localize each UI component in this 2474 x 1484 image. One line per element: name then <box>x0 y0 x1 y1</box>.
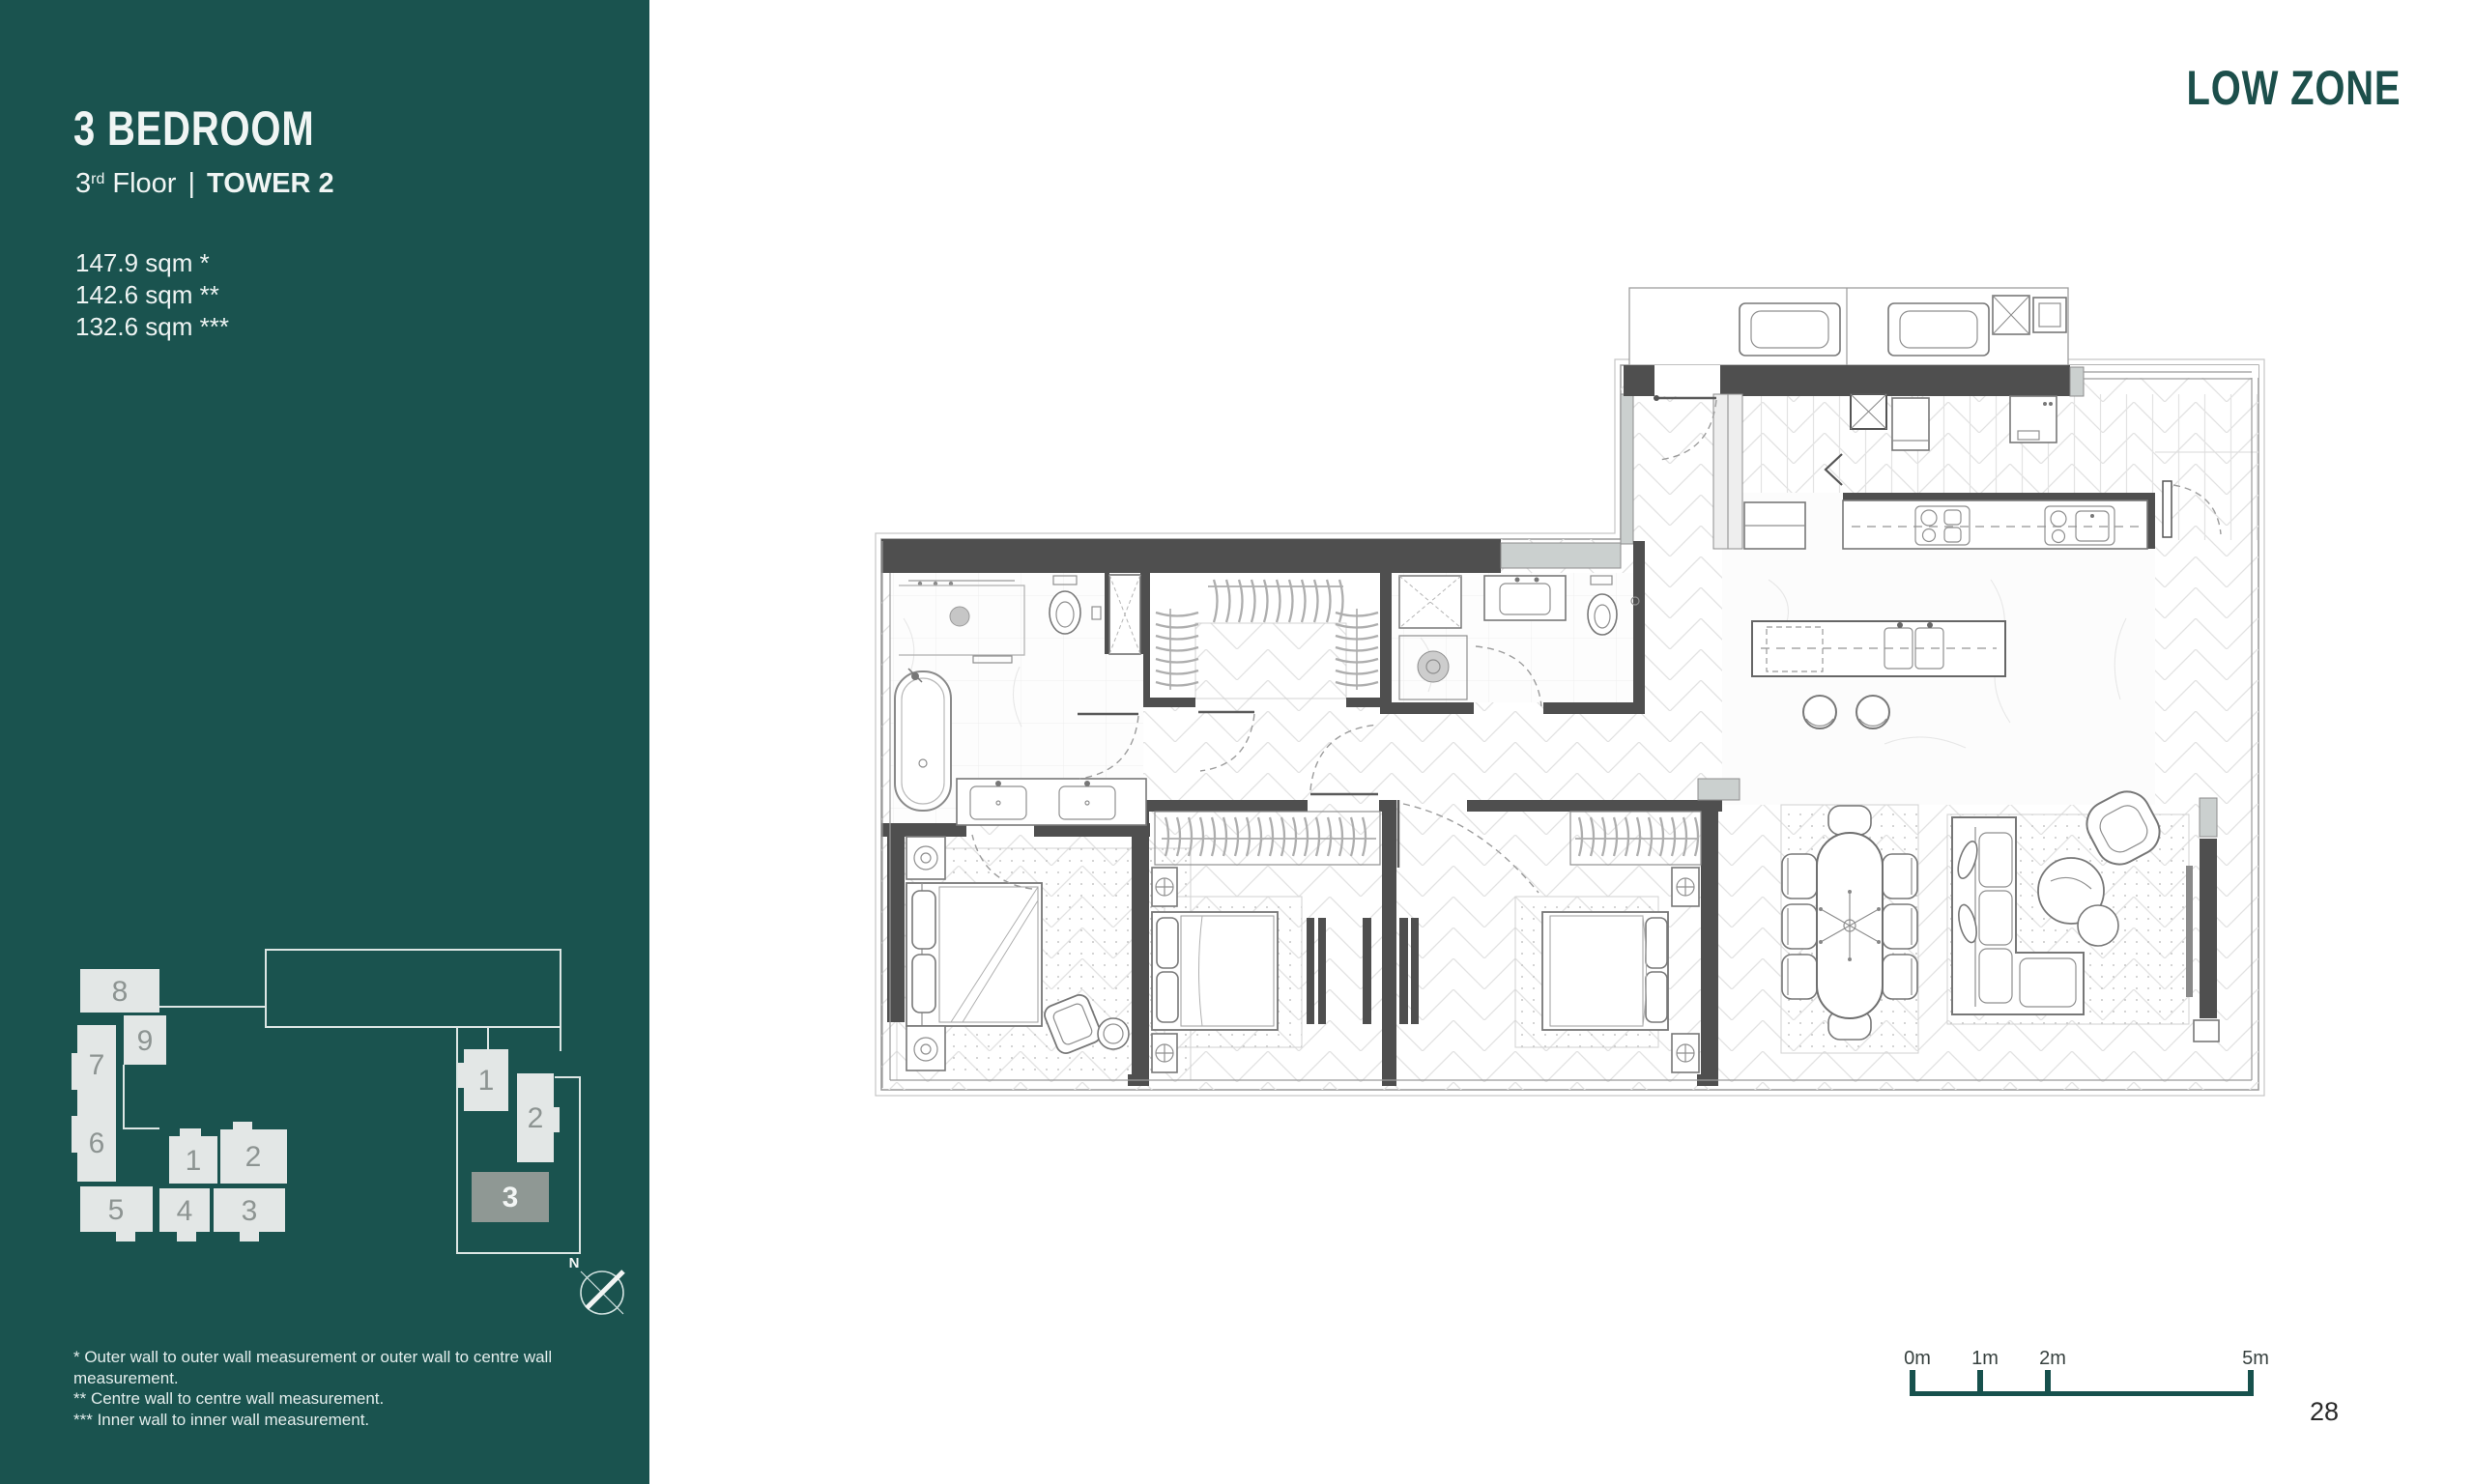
vanity <box>1484 576 1566 620</box>
ac-condenser-unit <box>1888 303 1989 356</box>
footnote-centre: ** Centre wall to centre wall measuremen… <box>73 1388 649 1410</box>
pillow <box>912 891 935 949</box>
page-title: 3 BEDROOM <box>73 100 314 157</box>
dining-chair <box>1828 806 1871 835</box>
floor-ordinal: rd <box>91 171 104 187</box>
shower-drain <box>950 607 969 626</box>
nightstand <box>906 837 945 879</box>
unit-number: 1 <box>186 1145 202 1177</box>
north-arrow-icon: N <box>569 1255 623 1314</box>
page-number: 28 <box>2310 1397 2339 1427</box>
unit-number: 6 <box>89 1127 105 1159</box>
tower-label: TOWER 2 <box>207 168 334 199</box>
highlighted-unit-number: 3 <box>503 1182 519 1213</box>
bar-stool <box>1856 696 1889 728</box>
kitchen-island <box>1752 621 2005 676</box>
footnote-inner: *** Inner wall to inner wall measurement… <box>73 1410 649 1431</box>
key-plan-svg: 8 9 7 6 5 4 3 1 2 1 <box>48 918 667 1343</box>
floor-number: 3 <box>75 168 91 199</box>
area-inner: 132.6 sqm *** <box>75 311 229 343</box>
double-vanity <box>957 779 1146 825</box>
area-measurements: 147.9 sqm * 142.6 sqm ** 132.6 sqm *** <box>75 247 229 343</box>
zone-label: LOW ZONE <box>2186 60 2401 116</box>
scale-label-1m: 1m <box>1971 1348 1999 1369</box>
unit-number: 8 <box>112 976 129 1008</box>
pillow <box>912 955 935 1013</box>
area-outer: 147.9 sqm * <box>75 247 229 279</box>
unit-number: 1 <box>478 1065 495 1097</box>
north-label: N <box>569 1255 580 1271</box>
subtitle-separator: | <box>187 168 195 199</box>
scale-bar-svg: 0m 1m 2m 5m <box>1892 1341 2279 1438</box>
scale-label-0m: 0m <box>1904 1348 1931 1369</box>
sidebar: 3 BEDROOM 3rdFloor|TOWER 2 147.9 sqm * 1… <box>0 0 649 1484</box>
measurement-footnotes: * Outer wall to outer wall measurement o… <box>73 1347 649 1430</box>
floor-plan-svg <box>870 280 2271 1107</box>
key-plan-tower-1: 8 9 7 6 5 4 3 1 2 <box>72 969 287 1241</box>
unit-number: 4 <box>177 1195 193 1227</box>
unit-number: 2 <box>245 1141 262 1173</box>
bar-stool <box>1803 696 1836 728</box>
washer <box>1418 651 1449 682</box>
site-key-plan: 8 9 7 6 5 4 3 1 2 1 <box>48 918 667 1348</box>
unit-number: 3 <box>242 1195 258 1227</box>
nightstand <box>906 1026 945 1070</box>
pillow <box>1157 918 1178 968</box>
side-table <box>2078 905 2118 946</box>
floor-tower-subtitle: 3rdFloor|TOWER 2 <box>75 168 334 200</box>
ac-ledge <box>1629 288 2068 365</box>
toilet <box>1588 594 1617 635</box>
key-plan-tower-2: 1 2 3 <box>458 1049 560 1222</box>
footnote-outer: * Outer wall to outer wall measurement o… <box>73 1347 649 1388</box>
scale-label-2m: 2m <box>2039 1348 2066 1369</box>
pillow <box>1157 972 1178 1022</box>
floor-plan <box>870 280 2271 1112</box>
scale-bar: 0m 1m 2m 5m <box>1892 1341 2279 1442</box>
ottoman <box>1098 1018 1129 1049</box>
unit-number: 9 <box>137 1025 154 1057</box>
unit-number: 5 <box>108 1194 125 1226</box>
ac-condenser-unit <box>1740 303 1840 356</box>
pillow <box>1646 918 1667 968</box>
unit-number: 2 <box>528 1102 544 1134</box>
unit-number: 7 <box>89 1049 105 1081</box>
scale-label-5m: 5m <box>2242 1348 2269 1369</box>
area-centre: 142.6 sqm ** <box>75 279 229 311</box>
pillow <box>1646 972 1667 1022</box>
fridge <box>1892 398 1929 450</box>
floor-word: Floor <box>112 168 176 199</box>
